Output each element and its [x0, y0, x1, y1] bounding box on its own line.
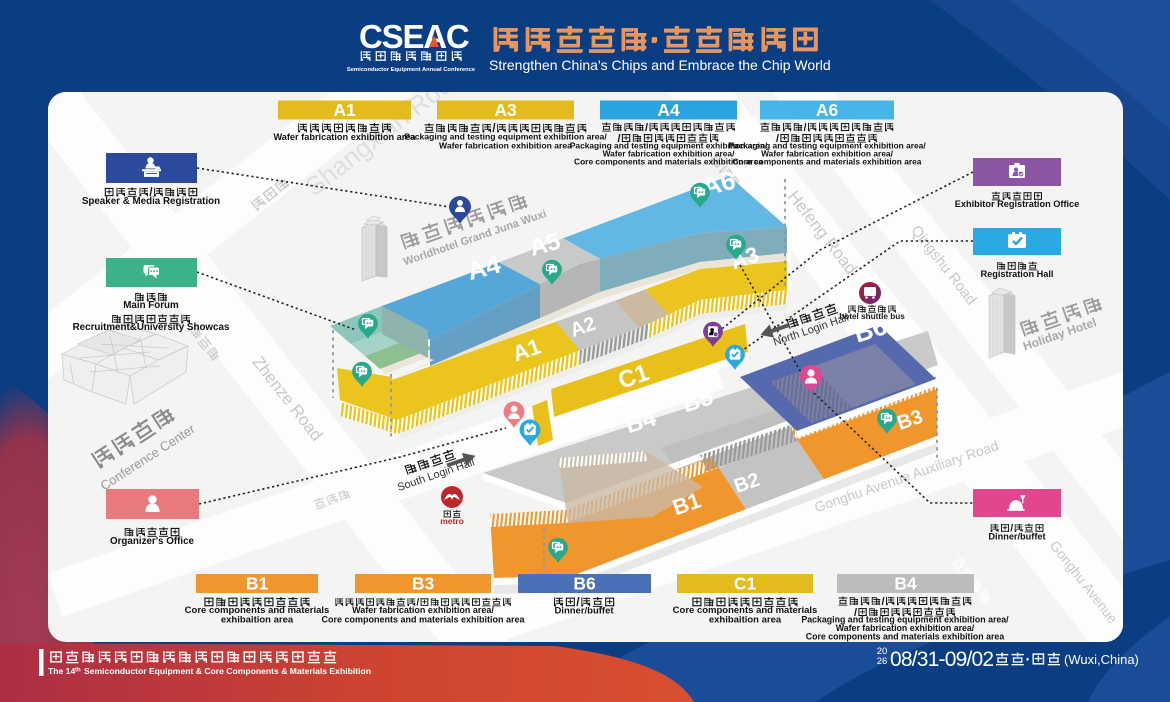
svg-text:Core components and materials: Core components and materials exhibition… [806, 632, 1005, 642]
svg-text:A6: A6 [816, 100, 839, 120]
svg-text:B3: B3 [412, 574, 435, 594]
svg-text:CSEAC: CSEAC [359, 18, 469, 55]
svg-text:A1: A1 [333, 100, 356, 120]
svg-text:Exhibitor Registration Office: Exhibitor Registration Office [955, 199, 1080, 209]
svg-text:C1: C1 [734, 574, 757, 594]
svg-text:hotel shuttle bus: hotel shuttle bus [839, 312, 905, 321]
svg-text:Recruitment&University Showcas: Recruitment&University Showcas [73, 322, 230, 333]
svg-text:Organizer's Office: Organizer's Office [110, 536, 195, 547]
svg-text:th: th [75, 668, 81, 674]
svg-text:Speaker & Media Registration: Speaker & Media Registration [82, 196, 220, 207]
svg-text:Dinner/buffet: Dinner/buffet [554, 606, 614, 617]
svg-text:/: / [645, 122, 648, 134]
svg-text:metro: metro [440, 516, 464, 526]
svg-text:Core components and materials: Core components and materials exhibition… [321, 615, 525, 625]
svg-text:Registration Hall: Registration Hall [980, 269, 1053, 279]
svg-text:A4: A4 [657, 100, 680, 120]
svg-text:Wafer fabrication exhibition a: Wafer fabrication exhibition area [439, 141, 572, 151]
svg-text:exhibaition area: exhibaition area [221, 615, 294, 626]
svg-text:·: · [1025, 651, 1030, 668]
svg-text:exhibaition area: exhibaition area [709, 615, 782, 626]
svg-text:Wafer fabrication exhibition a: Wafer fabrication exhibition area/ [352, 605, 494, 615]
svg-text:26: 26 [877, 656, 888, 667]
svg-text:Semiconductor Equipment & Core: Semiconductor Equipment & Core Component… [84, 666, 371, 676]
svg-text:·: · [650, 22, 661, 58]
svg-text:Dinner/buffet: Dinner/buffet [988, 532, 1045, 542]
svg-text:The 14: The 14 [48, 666, 75, 676]
svg-text:B1: B1 [246, 574, 269, 594]
svg-text:Strengthen China's Chips and E: Strengthen China's Chips and Embrace the… [489, 57, 831, 73]
svg-text:Semiconductor Equipment Annual: Semiconductor Equipment Annual Conferenc… [347, 67, 476, 73]
svg-text:Wafer fabrication exhibition a: Wafer fabrication exhibition area [273, 132, 416, 142]
svg-text:B4: B4 [894, 574, 917, 594]
svg-text:Core components and materials: Core components and materials exhibition… [733, 157, 922, 167]
svg-text:Main Forum: Main Forum [123, 300, 179, 311]
svg-text:/: / [882, 596, 885, 608]
svg-text:/: / [804, 122, 807, 134]
svg-text:B6: B6 [573, 574, 596, 594]
svg-text:(Wuxi,China): (Wuxi,China) [1064, 652, 1139, 667]
svg-text:A3: A3 [494, 100, 517, 120]
svg-text:08/31-09/02: 08/31-09/02 [890, 648, 993, 671]
